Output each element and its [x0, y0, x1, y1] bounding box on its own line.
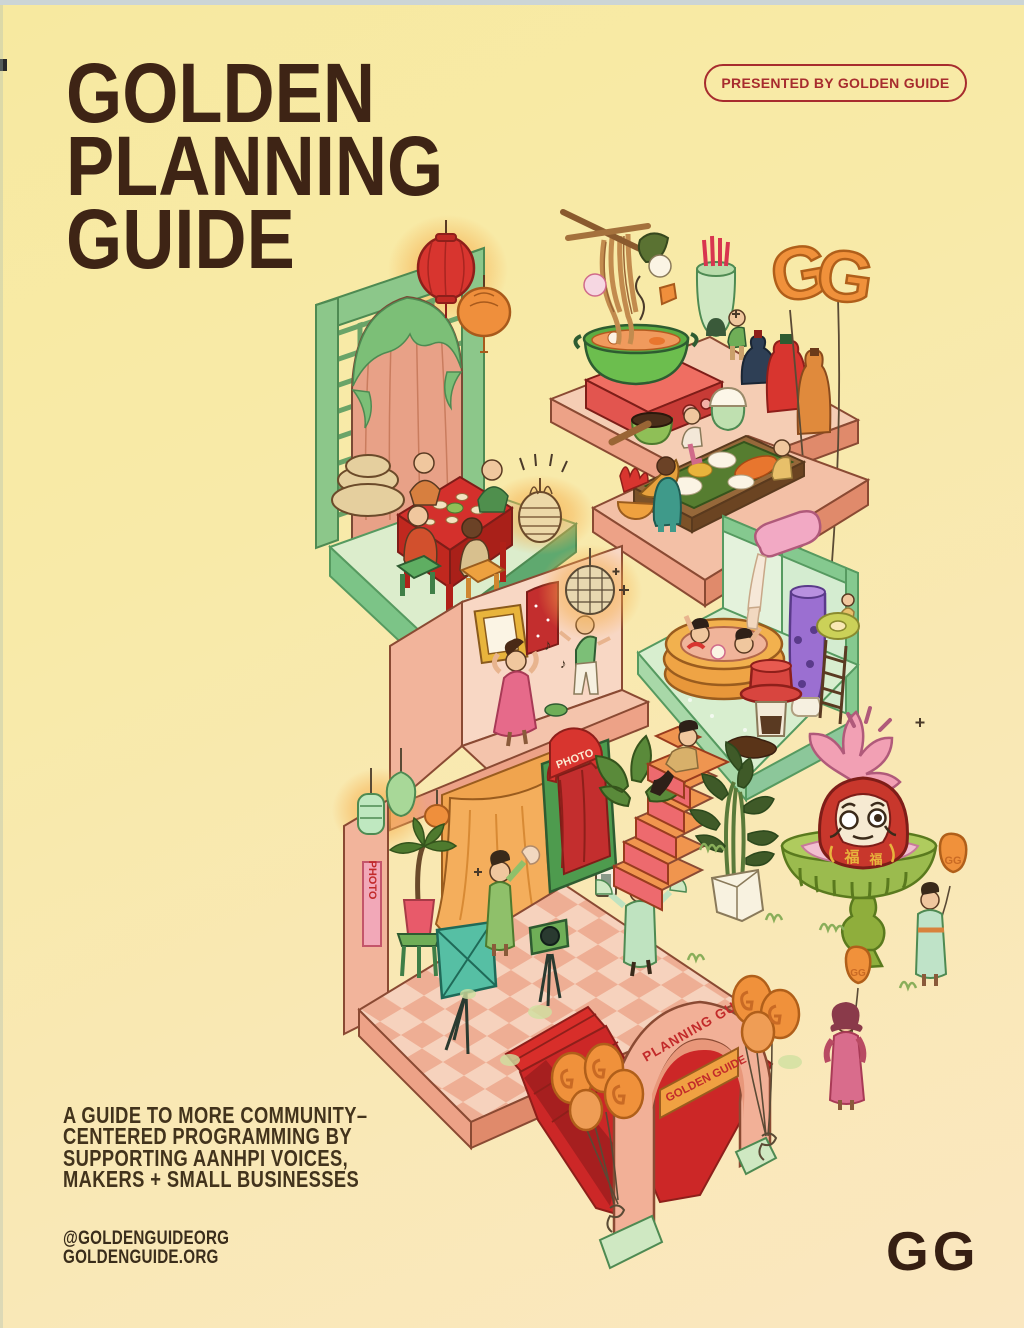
svg-text:PHOTO: PHOTO: [366, 861, 378, 900]
svg-text:福: 福: [868, 852, 882, 867]
svg-text:福: 福: [843, 848, 859, 866]
svg-text:♪: ♪: [560, 656, 567, 671]
svg-text:GG: GG: [850, 968, 866, 979]
svg-text:GG: GG: [944, 855, 961, 867]
svg-text:G: G: [812, 234, 879, 321]
svg-text:♪: ♪: [544, 637, 552, 654]
